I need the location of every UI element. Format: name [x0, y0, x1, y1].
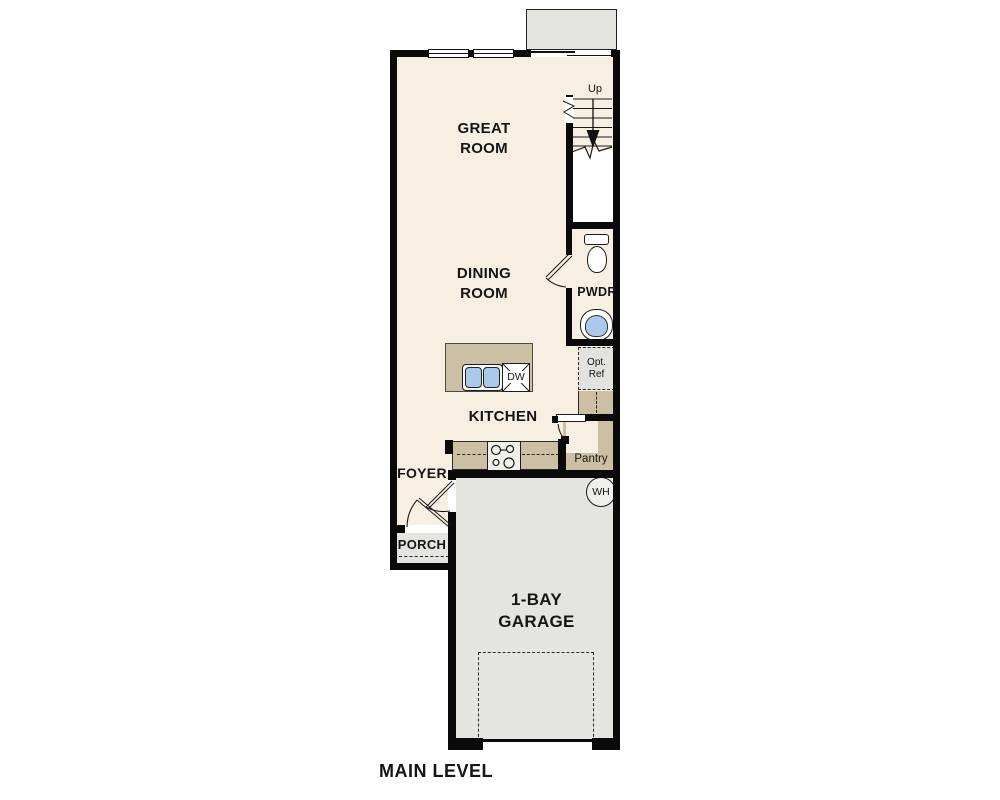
- dining-room-label: DINING ROOM: [434, 264, 534, 303]
- wall-foyer-bottom-stub: [390, 525, 405, 533]
- wall-garage-bottom-right-stub: [592, 738, 620, 750]
- wall-foyer-garage-lower: [448, 512, 456, 750]
- porch-edge-dashed: [399, 556, 449, 557]
- wall-left: [390, 50, 397, 570]
- toilet-tank: [584, 234, 609, 245]
- wall-porch-bottom: [390, 563, 455, 570]
- kitchen-label: KITCHEN: [453, 407, 553, 427]
- garage-door-line: [483, 739, 592, 742]
- stairs-up-label: Up: [580, 82, 610, 96]
- foyer-label: FOYER: [392, 464, 452, 482]
- wall-counter-end-stub: [445, 440, 453, 454]
- patio-pad: [526, 9, 617, 50]
- water-heater: WH: [586, 477, 616, 507]
- porch-label: PORCH: [396, 537, 448, 554]
- sliding-door-panel-line-2: [567, 55, 611, 57]
- sliding-glass-door: [531, 50, 611, 57]
- island-sink-bowl-right: [483, 367, 500, 388]
- optional-refrigerator-label: Opt. Ref: [579, 357, 614, 380]
- counter-dashed-right: [522, 454, 559, 455]
- wall-powder-left-lower: [566, 288, 572, 346]
- wall-stair-bottom: [566, 222, 620, 229]
- wall-below-refrigerator: [585, 414, 620, 421]
- pantry-clear-area: [566, 420, 598, 453]
- wall-garage-bottom-left-stub: [448, 738, 483, 750]
- window-great-room-1: [428, 49, 469, 58]
- window-great-room-2: [473, 49, 514, 58]
- stair-landing: [573, 150, 613, 222]
- stair-wall-break: [565, 97, 574, 123]
- dishwasher-label: DW: [502, 371, 530, 385]
- water-heater-label: WH: [592, 486, 610, 498]
- island-sink-bowl-left: [465, 367, 482, 388]
- wall-right: [613, 50, 620, 750]
- pantry-label: Pantry: [566, 452, 616, 467]
- wall-pantry-left: [558, 439, 566, 473]
- wall-powder-bottom: [566, 339, 620, 346]
- optional-refrigerator: Opt. Ref: [578, 347, 615, 390]
- powder-room-label: PWDR: [575, 284, 619, 300]
- toilet-bowl: [587, 246, 607, 273]
- dishwasher-label-text: DW: [506, 371, 526, 383]
- sliding-door-panel-line-1: [531, 51, 575, 53]
- wall-powder-left-upper: [566, 229, 572, 255]
- garage-parking-outline: [478, 652, 594, 742]
- garage-label: 1-BAY GARAGE: [494, 589, 579, 633]
- counter-dashed-left: [457, 454, 486, 455]
- wall-garage-top: [448, 470, 620, 478]
- range: [487, 441, 521, 471]
- level-title: MAIN LEVEL: [356, 760, 516, 783]
- pantry-door-panel: [556, 414, 586, 422]
- floor-plan-canvas: Opt. Ref WH: [0, 0, 1000, 800]
- refrigerator-counter-dashed: [596, 392, 597, 413]
- powder-sink-bowl: [585, 315, 608, 337]
- great-room-label: GREAT ROOM: [434, 119, 534, 158]
